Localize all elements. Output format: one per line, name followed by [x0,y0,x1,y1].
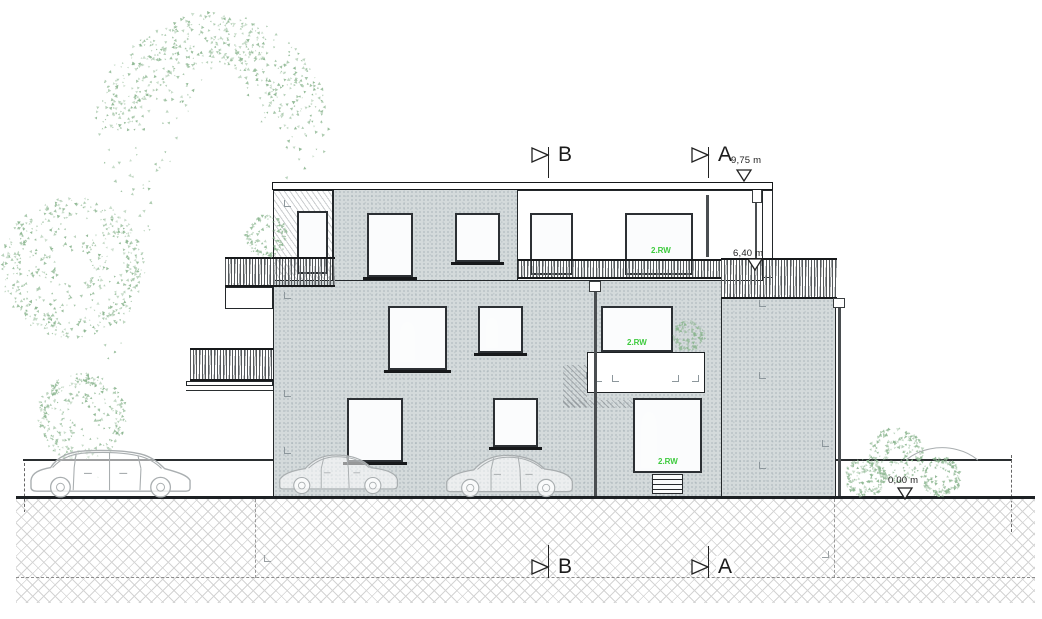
elevation-ground: 0,00 m [888,476,918,486]
window-sill [363,277,417,280]
entrance-steps [652,474,683,494]
bush-right-3-icon [919,455,964,500]
bush-penthouse-icon [241,211,291,261]
corner-mark [284,390,291,397]
corner-mark [822,551,829,558]
balcony-railing-upper-left [190,348,273,381]
window-sill [384,370,451,373]
corner-mark [284,292,291,299]
corner-mark [672,375,679,382]
section-flag-icon [531,147,549,163]
corner-mark [822,440,829,447]
window-sill [474,353,527,356]
corner-mark [759,462,766,469]
window-penthouse-2 [455,213,500,262]
round-tree-icon [0,188,158,358]
elevation-triangle-icon [736,169,752,182]
corner-mark [264,555,271,562]
elevation-triangle-icon [747,258,763,271]
corner-mark [612,375,619,382]
penthouse-downpipe [706,195,709,257]
section-flag-icon [691,147,709,163]
elevation-triangle-icon [897,487,913,500]
balcony-shadow [563,400,635,408]
balcony-slab-upper-left [186,381,273,386]
escape-route-label-ground: 2.RW [658,458,678,466]
main-facade-right-wing [721,298,836,497]
window-mid-2 [478,306,523,353]
elevation-drawing-canvas: 2.RW 2.RW 2.RW [0,0,1042,619]
section-marker-b-bottom: B [556,556,574,577]
escape-route-label-mid: 2.RW [627,339,647,347]
corner-mark [759,300,766,307]
downpipe-mid [594,292,597,497]
escape-route-label-top: 2.RW [651,247,671,255]
car-sedan-2 [441,450,579,497]
person-silhouette [400,322,415,362]
person-silhouette [641,412,657,468]
balcony-box-right [587,352,705,393]
downpipe-collector-mid [589,281,601,292]
section-flag-icon [691,559,709,575]
balcony-slab-left [225,287,273,309]
balcony-railing-right-wing [721,258,837,299]
window-mid-1 [388,306,447,370]
corner-mark [692,375,699,382]
window-ground-2 [493,398,538,447]
car-wagon-left [25,444,197,498]
corner-mark [284,200,291,207]
person-silhouette [486,318,498,348]
window-sill [451,262,504,265]
section-dash-line [16,577,1035,578]
section-marker-b-top: B [556,144,574,165]
elevation-roof: 9,75 m [731,156,761,166]
bush-balcony-icon [670,317,708,355]
section-marker-a-bottom: A [716,556,734,577]
downpipe-collector-right [833,298,845,308]
window-penthouse-1 [367,213,413,277]
balcony-railing-penthouse-front [518,259,721,279]
balcony-screen-return [186,390,273,391]
roof-drain-box [752,188,762,203]
balcony-railing-penthouse-left [225,257,335,287]
car-sedan-1 [275,450,403,494]
downpipe-right [838,308,841,497]
corner-mark [759,372,766,379]
roof-band [272,182,773,190]
section-flag-icon [531,559,549,575]
